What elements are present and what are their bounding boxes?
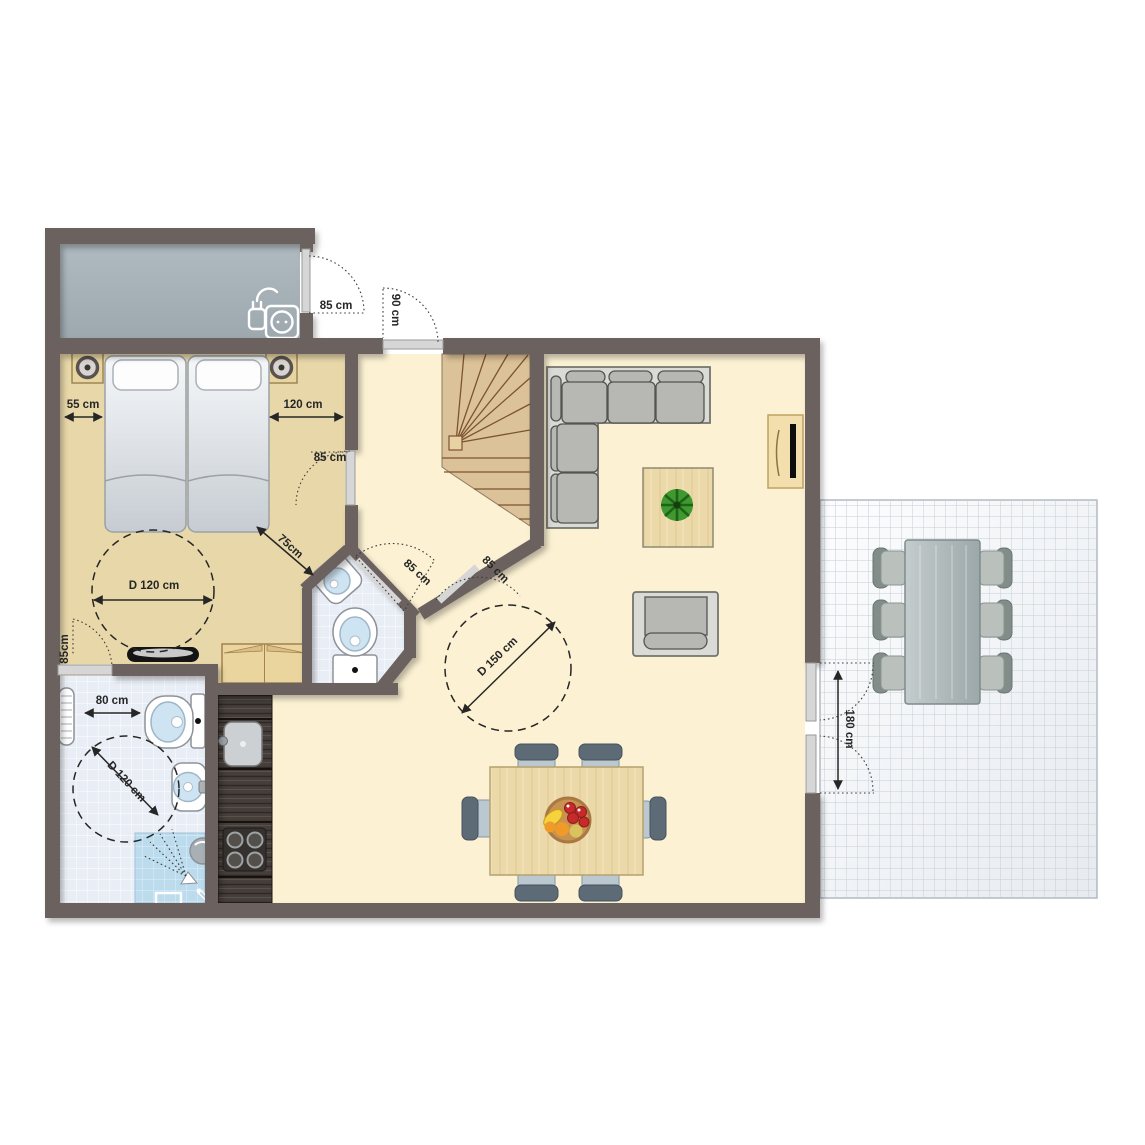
dimension-label-terrace-door: 180 cm <box>843 709 855 748</box>
floor-plan-canvas: 85 cm 90 cm 55 cm 120 cm 85 cm 75cm D 12… <box>0 0 1145 1145</box>
dimension-label-bed-right: 120 cm <box>283 399 322 411</box>
radiator <box>59 688 74 745</box>
bedroom-door-leaf <box>346 451 355 505</box>
toilet <box>145 694 205 748</box>
terrace-chair <box>979 653 1012 693</box>
kitchen-sink <box>219 722 263 766</box>
bathroom-door-leaf <box>58 665 112 675</box>
dimension-label-bed-left: 55 cm <box>67 399 100 411</box>
terrace-door-leaf <box>806 735 816 793</box>
dimension-label-entrance-door: 90 cm <box>389 294 401 327</box>
dimension-label-bedroom-circle: D 120 cm <box>129 580 180 592</box>
wardrobe <box>222 644 307 683</box>
terrace-chair <box>979 600 1012 640</box>
nightstand-left <box>72 352 103 383</box>
dimension-label-storage-door: 85 cm <box>320 300 353 312</box>
coffee-table <box>643 468 713 547</box>
floor-plan: 85 cm 90 cm 55 cm 120 cm 85 cm 75cm D 12… <box>0 0 1145 1145</box>
dimension-label-bathroom-door: 85cm <box>59 634 71 663</box>
terrace-chair <box>979 548 1012 588</box>
entrance-door-leaf <box>383 340 443 349</box>
tv-cabinet <box>768 415 803 488</box>
nightstand-right <box>266 352 297 383</box>
stair-newel <box>449 436 462 450</box>
stove <box>223 828 266 871</box>
plant-icon <box>661 489 693 521</box>
storage-door-leaf <box>302 249 310 312</box>
terrace-chair <box>873 548 906 588</box>
pillow <box>196 360 261 390</box>
terrace-table <box>905 540 980 704</box>
terrace-door-leaf <box>806 663 816 721</box>
dimension-label-toilet-clearance: 80 cm <box>96 695 129 707</box>
faucet-icon <box>219 737 228 746</box>
pillow <box>113 360 178 390</box>
tv-icon <box>790 424 796 478</box>
terrace-chair <box>873 653 906 693</box>
terrace-chair <box>873 600 906 640</box>
floor-mat <box>127 647 199 662</box>
dimension-label-bedroom-door: 85 cm <box>314 452 347 464</box>
wc-toilet <box>333 608 377 685</box>
armchair <box>633 592 718 656</box>
dining-table <box>490 767 643 875</box>
